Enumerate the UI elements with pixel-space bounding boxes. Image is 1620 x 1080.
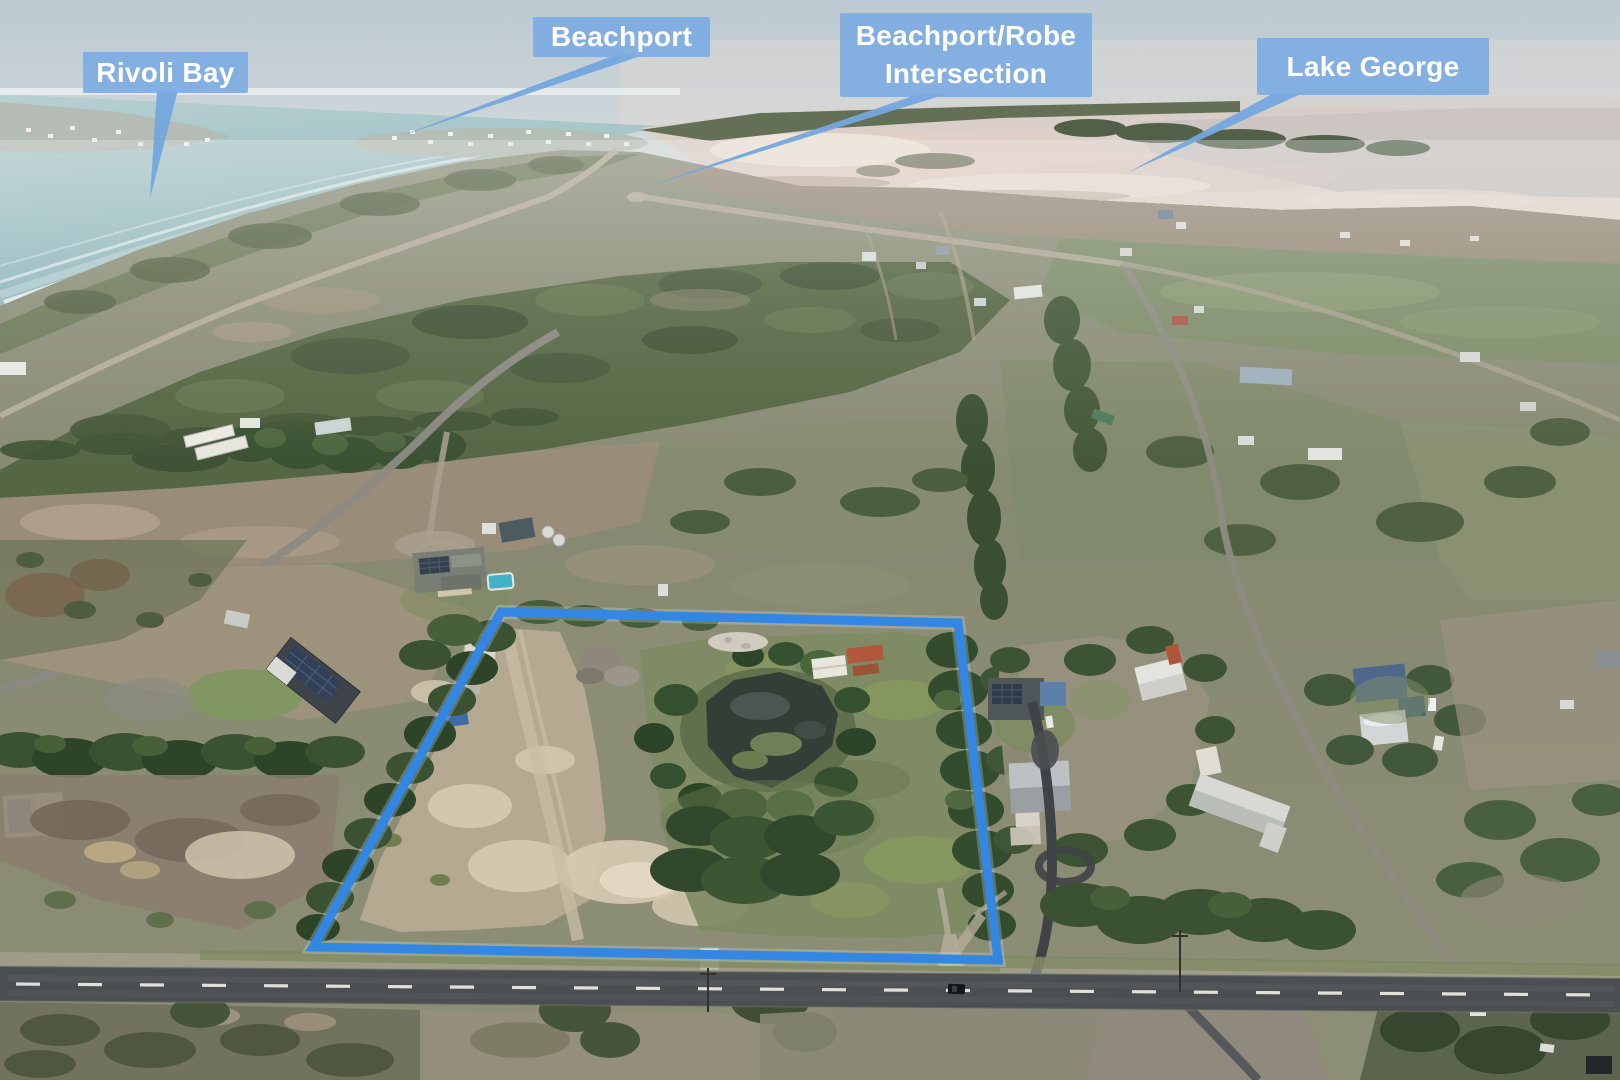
leader-line-beachport-robe-intersection xyxy=(633,94,947,191)
property-boundary-glow xyxy=(313,612,998,960)
label-beachport-text: Beachport xyxy=(551,18,692,56)
label-rivoli-bay-text: Rivoli Bay xyxy=(96,54,234,92)
label-lake-george: Lake George xyxy=(1257,38,1489,95)
label-lake-george-text: Lake George xyxy=(1287,48,1460,86)
label-beachport-robe-intersection: Beachport/Robe Intersection xyxy=(840,13,1092,97)
property-boundary xyxy=(313,612,998,960)
label-beachport-robe-intersection-text: Beachport/Robe Intersection xyxy=(850,17,1082,93)
label-beachport: Beachport xyxy=(533,17,710,57)
leader-line-rivoli-bay xyxy=(150,90,178,198)
leader-line-beachport xyxy=(398,55,644,137)
annotation-overlay xyxy=(0,0,1620,1080)
leader-line-lake-george xyxy=(1127,93,1303,173)
aerial-photo-canvas: Rivoli Bay Beachport Beachport/Robe Inte… xyxy=(0,0,1620,1080)
label-rivoli-bay: Rivoli Bay xyxy=(83,52,248,93)
